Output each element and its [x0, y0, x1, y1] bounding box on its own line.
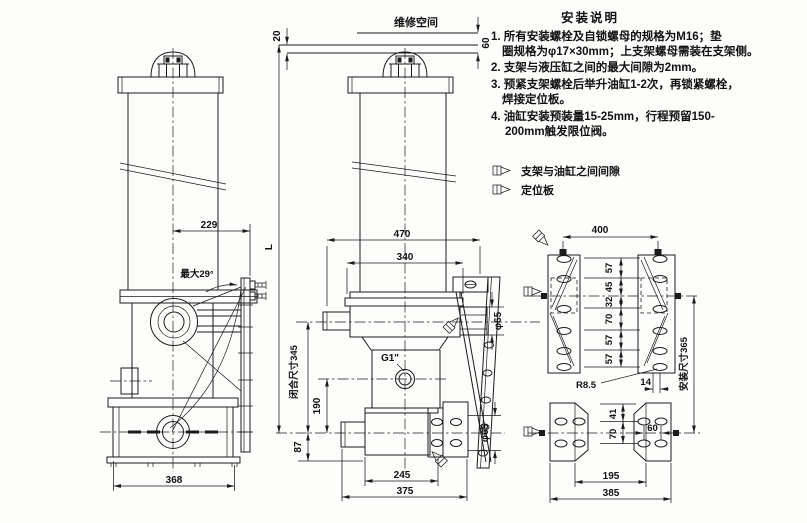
dim-total-length-group: L: [264, 45, 279, 433]
port-label: G1": [381, 353, 399, 364]
dim-14: 14: [640, 377, 651, 388]
spacing-70: 70: [604, 314, 615, 325]
dim-41: 41: [608, 408, 619, 419]
legend-plate-marker-icon: [493, 185, 510, 194]
spacing-32: 32: [604, 297, 615, 308]
maintenance-space-label: 维修空间: [394, 15, 438, 29]
cylinder-flange-front: [348, 77, 453, 93]
notes-title: 安装说明: [561, 10, 619, 25]
dim-190: 190: [312, 397, 323, 414]
dim-470: 470: [394, 229, 411, 240]
positioning-plate-view: 41 70 60 195 385: [524, 403, 700, 503]
left-support-plate: [548, 255, 580, 373]
slot-width-callout: 14: [640, 373, 669, 393]
left-positioning-plate: [550, 403, 588, 461]
hole-spacing-chain: 57 45 32 70 57 57: [584, 258, 640, 367]
plate-top-reference-marker: [533, 230, 551, 248]
note-line-4b: 200mm触发限位阀。: [505, 124, 614, 138]
dim-r85: R8.5: [576, 380, 597, 391]
dim-385-group: 385: [550, 463, 671, 503]
spacing-57a: 57: [604, 263, 615, 274]
spacing-57c: 57: [604, 354, 615, 365]
trunnion-bracket: [110, 278, 257, 452]
dim-195-group: 195: [575, 463, 646, 487]
drawing-canvas: 维修空间 20 60: [0, 0, 807, 523]
installation-notes: 安装说明 1. 所有安装螺栓及自锁螺母的规格为M16；垫 圈规格为φ17×30m…: [491, 10, 758, 197]
dim-229: 229: [201, 220, 218, 231]
closed-length-label: 闭合尺寸345: [288, 344, 300, 399]
max-angle-label: 最大29°: [180, 268, 214, 280]
legend-gap-label: 支架与油缸之间间隙: [520, 164, 620, 178]
dim-400: 400: [592, 225, 609, 236]
dim-41-70-chain: 41 70: [600, 404, 638, 444]
support-plate-view: 400 57 45 32 70 57 57: [524, 225, 700, 433]
dim-87: 87: [293, 441, 304, 453]
note-line-3a: 3. 预紧支架螺栓后举升油缸1-2次，再锁紧螺栓，: [491, 77, 739, 91]
note-line-1a: 1. 所有安装螺栓及自锁螺母的规格为M16；垫: [491, 29, 722, 43]
dim-385: 385: [603, 488, 620, 499]
dim-20: 20: [272, 30, 283, 42]
spacing-45: 45: [604, 281, 615, 292]
positioning-reference-marker: [524, 427, 541, 436]
dim-340: 340: [397, 252, 414, 263]
legend-plate-row: 定位板: [493, 183, 555, 197]
dim-368-group: 368: [114, 461, 235, 491]
oil-port: G1": [318, 353, 448, 389]
dim-pin-dia-group: φ65: [487, 292, 504, 350]
centerline-reference-marker: [524, 287, 541, 296]
dim-install-length-group: 安装尺寸365: [678, 296, 694, 433]
dim-60-group: 60: [635, 423, 670, 440]
dim-375: 375: [397, 486, 414, 497]
plate-reference-marker: [429, 449, 447, 467]
spacing-57b: 57: [604, 335, 615, 346]
legend-plate-label: 定位板: [521, 183, 555, 197]
note-line-4a: 4. 油缸安装预装量15-25mm，行程预留150-: [491, 109, 715, 123]
total-length-label: L: [264, 244, 275, 250]
dim-195: 195: [603, 471, 620, 482]
dim-229-group: 229: [173, 220, 250, 276]
left-side-view: 最大29° 229 368: [100, 48, 266, 491]
right-support-plate: [638, 255, 675, 373]
dim-245-group: 245: [365, 457, 438, 486]
dim-pin-dia-bottom: φ65: [480, 423, 491, 442]
gap-reference-marker: [443, 315, 461, 333]
note-line-3b: 焊接定位板。: [502, 92, 571, 106]
note-line-2: 2. 支架与液压缸之间的最大间隙为2mm。: [491, 60, 703, 74]
legend-gap-row: 支架与油缸之间间隙: [493, 164, 620, 178]
dim-60b: 60: [647, 423, 658, 434]
dim-70: 70: [608, 429, 619, 440]
legend-gap-marker-icon: [493, 166, 510, 175]
maintenance-space-area: 维修空间 20 60: [272, 15, 492, 70]
dim-closed-length-group: 闭合尺寸345: [288, 322, 308, 433]
dim-190-group: 190: [312, 379, 327, 433]
dim-245: 245: [394, 470, 411, 481]
max-angle-annotation: 最大29°: [180, 268, 237, 292]
dim-368: 368: [166, 475, 183, 486]
base-bracket: [100, 398, 252, 467]
note-line-1b: 圈规格为φ17×30mm；上支架螺母需装在支架侧。: [502, 44, 758, 58]
dim-400-group: 400: [560, 225, 662, 255]
lower-body-front: [276, 350, 505, 457]
install-length-label: 安装尺寸365: [678, 336, 690, 391]
dim-pin-dia: φ65: [493, 311, 504, 330]
cylinder-flange: [118, 77, 223, 93]
